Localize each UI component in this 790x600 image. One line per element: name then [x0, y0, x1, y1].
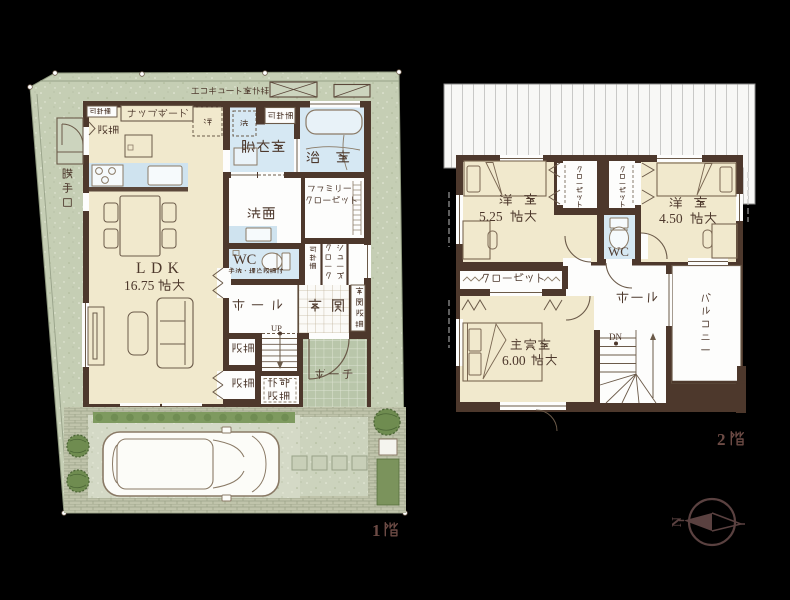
svg-text:N: N [670, 517, 685, 527]
svg-text:2: 2 [717, 430, 726, 449]
svg-text:UP: UP [271, 323, 282, 333]
svg-text:LDK: LDK [136, 260, 184, 277]
svg-text:WC: WC [608, 244, 629, 259]
svg-text:WC: WC [233, 252, 256, 268]
svg-text:DN: DN [609, 332, 622, 342]
svg-text:16.75: 16.75 [124, 278, 155, 293]
svg-text:5.25: 5.25 [479, 209, 503, 224]
svg-text:6.00: 6.00 [502, 353, 526, 368]
svg-text:4.50: 4.50 [659, 211, 683, 226]
svg-text:1: 1 [372, 521, 381, 540]
